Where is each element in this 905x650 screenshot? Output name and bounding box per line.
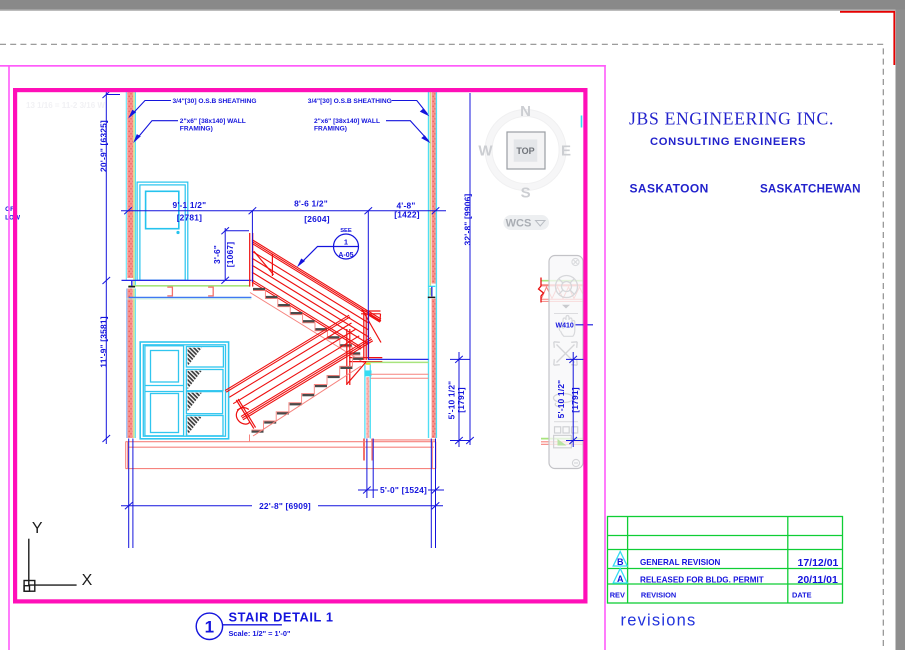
svg-text:[1067]: [1067] [225, 242, 235, 267]
svg-text:FRAMING): FRAMING) [180, 126, 213, 133]
svg-text:5'-10 1/2": 5'-10 1/2" [446, 381, 456, 420]
svg-text:13 1/16 = 11-2 3/16 W: 13 1/16 = 11-2 3/16 W [26, 101, 105, 110]
svg-text:S: S [521, 185, 531, 202]
svg-text:A-05: A-05 [338, 252, 353, 259]
svg-text:20/11/01: 20/11/01 [798, 574, 838, 586]
svg-text:revisions: revisions [621, 612, 697, 630]
svg-text:8'-6 1/2": 8'-6 1/2" [294, 199, 328, 209]
svg-text:[1791]: [1791] [456, 387, 466, 412]
svg-text:20'-9" [6325]: 20'-9" [6325] [99, 120, 109, 172]
svg-text:[1422]: [1422] [394, 209, 419, 219]
svg-text:1: 1 [344, 237, 348, 246]
svg-text:CONSULTING ENGINEERS: CONSULTING ENGINEERS [650, 136, 806, 148]
svg-text:W410: W410 [556, 323, 574, 330]
svg-text:32'-8" [9906]: 32'-8" [9906] [462, 194, 472, 246]
svg-text:SASKATCHEWAN: SASKATCHEWAN [760, 183, 861, 196]
svg-text:B: B [617, 557, 624, 567]
svg-text:3/4"[30] O.S.B SHEATHING: 3/4"[30] O.S.B SHEATHING [173, 98, 257, 105]
svg-text:W: W [478, 143, 493, 160]
svg-text:REVISION: REVISION [641, 591, 676, 600]
svg-text:RELEASED FOR BLDG. PERMIT: RELEASED FOR BLDG. PERMIT [640, 576, 764, 585]
svg-text:X: X [82, 572, 93, 589]
svg-text:N: N [520, 103, 531, 120]
svg-text:A: A [617, 574, 624, 584]
svg-text:22'-8" [6909]: 22'-8" [6909] [259, 501, 311, 511]
svg-text:1: 1 [205, 617, 214, 636]
svg-text:WCS: WCS [506, 217, 532, 229]
svg-text:9'-1 1/2": 9'-1 1/2" [172, 200, 206, 210]
svg-text:11'-9" [3581]: 11'-9" [3581] [99, 316, 109, 367]
svg-text:Scale: 1/2" = 1'-0": Scale: 1/2" = 1'-0" [229, 629, 291, 638]
svg-text:[2604]: [2604] [304, 214, 329, 224]
svg-text:JBS ENGINEERING INC.: JBS ENGINEERING INC. [629, 109, 834, 129]
svg-text:STAIR DETAIL 1: STAIR DETAIL 1 [229, 610, 334, 625]
svg-text:REV: REV [610, 591, 625, 600]
svg-text:DATE: DATE [792, 591, 812, 600]
svg-text:SASKATOON: SASKATOON [630, 182, 709, 196]
svg-text:[1791]: [1791] [570, 387, 580, 412]
svg-text:3/4"[30] O.S.B SHEATHING: 3/4"[30] O.S.B SHEATHING [308, 98, 392, 105]
svg-text:5'-10 1/2": 5'-10 1/2" [556, 380, 566, 419]
svg-text:3'-6": 3'-6" [212, 245, 222, 264]
svg-text:5'-0" [1524]: 5'-0" [1524] [380, 485, 427, 495]
svg-text:E: E [561, 143, 571, 160]
svg-text:Y: Y [32, 520, 43, 537]
svg-text:FRAMING): FRAMING) [314, 126, 347, 133]
svg-text:17/12/01: 17/12/01 [798, 557, 839, 569]
svg-text:GENERAL REVISION: GENERAL REVISION [640, 558, 721, 567]
svg-text:SEE: SEE [340, 228, 352, 234]
svg-text:2"x6" [38x140] WALL: 2"x6" [38x140] WALL [314, 118, 380, 125]
svg-text:[2781]: [2781] [177, 212, 202, 222]
svg-text:TOP: TOP [516, 146, 534, 156]
svg-text:2"x6" [38x140] WALL: 2"x6" [38x140] WALL [180, 118, 246, 125]
